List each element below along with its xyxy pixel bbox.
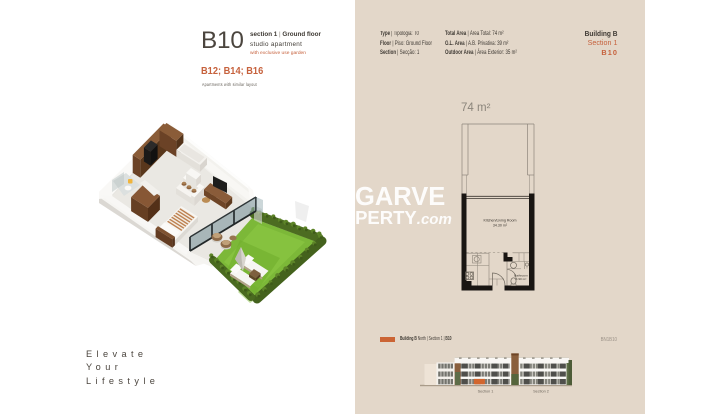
svg-text:Section 2: Section 2 <box>533 390 549 394</box>
svg-text:Kitchen/Living Room: Kitchen/Living Room <box>484 219 517 223</box>
svg-text:34.30 m²: 34.30 m² <box>493 224 508 228</box>
svg-text:Section 1: Section 1 <box>478 390 494 394</box>
svg-text:4.90 m²: 4.90 m² <box>516 277 527 281</box>
